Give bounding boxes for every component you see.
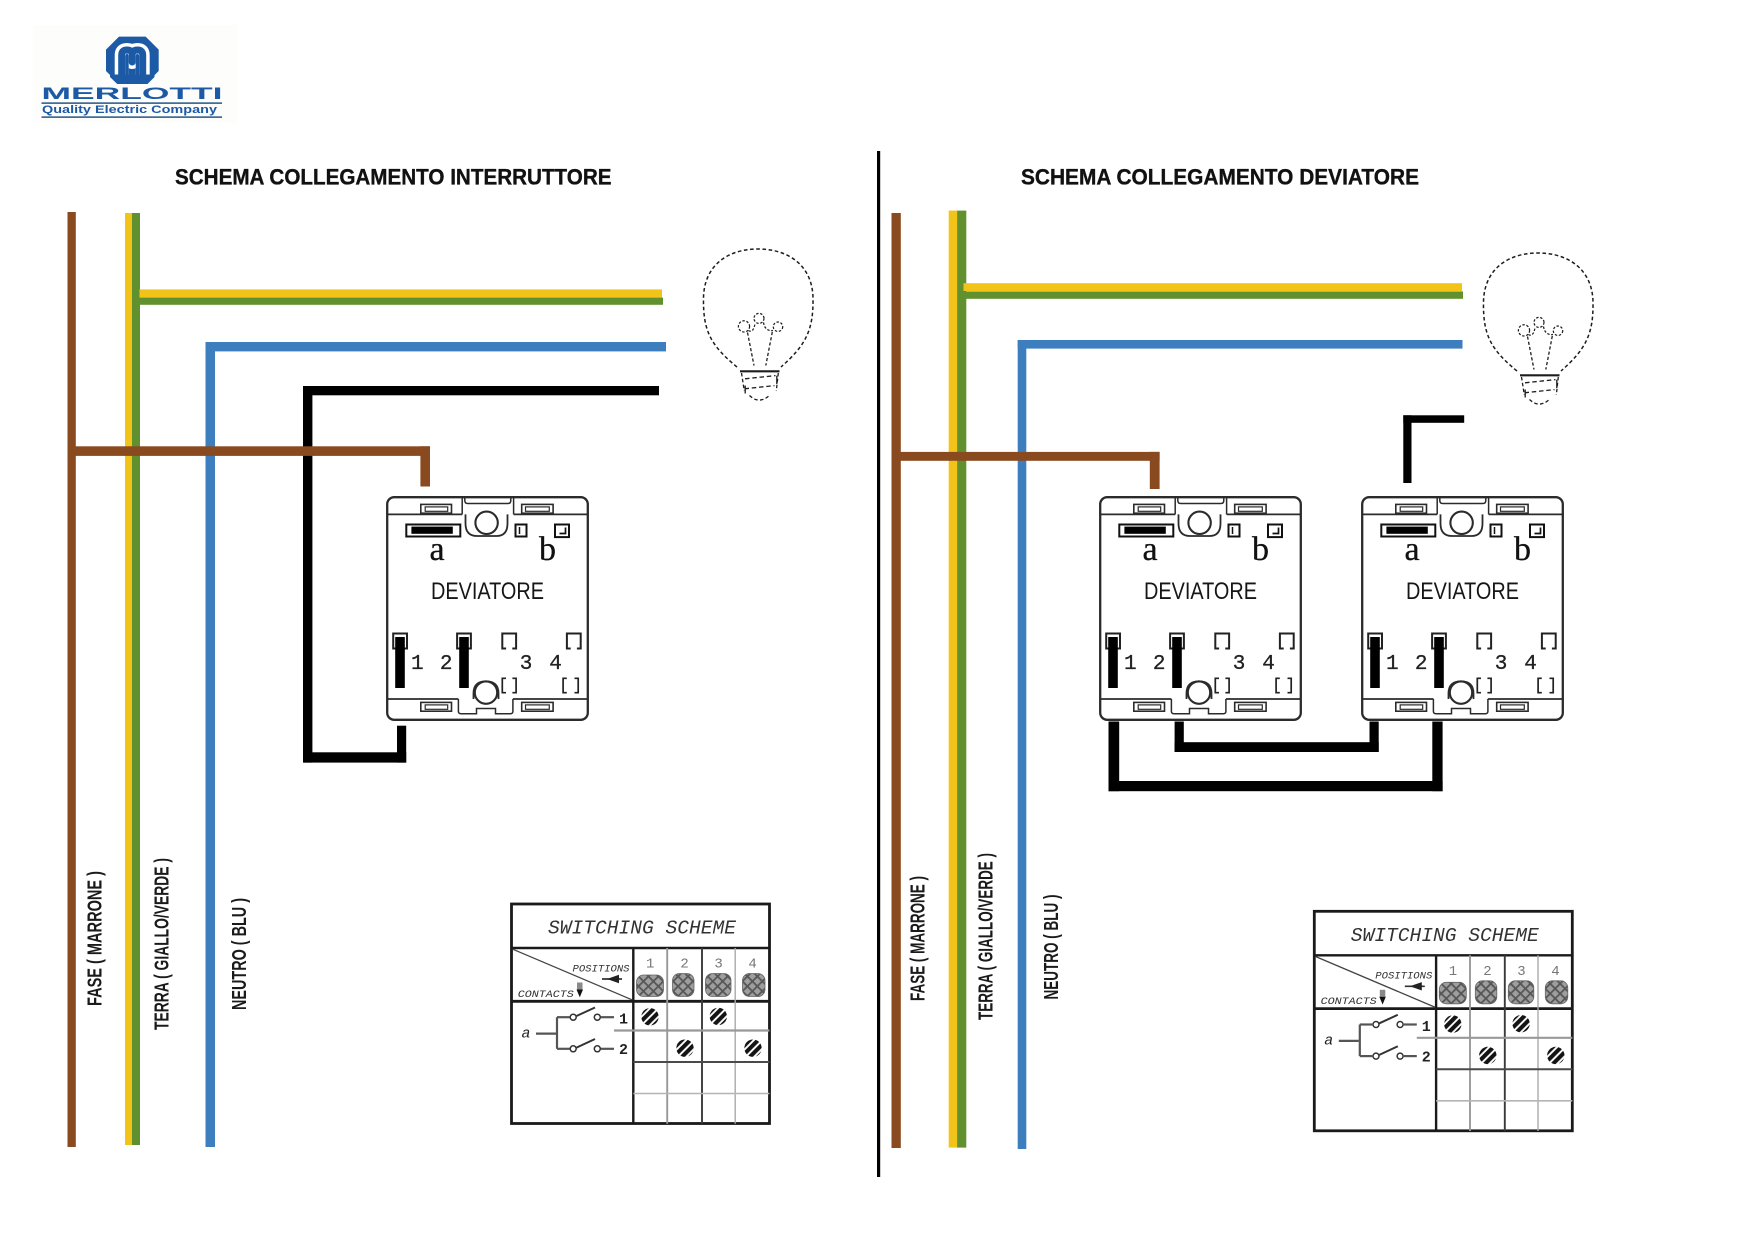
svg-text:NEUTRO ( BLU ): NEUTRO ( BLU ) xyxy=(1041,895,1063,1000)
svg-text:SCHEMA COLLEGAMENTO DEVIATORE: SCHEMA COLLEGAMENTO DEVIATORE xyxy=(1021,164,1419,189)
svg-text:FASE ( MARRONE ): FASE ( MARRONE ) xyxy=(85,871,107,1006)
svg-text:Quality Electric Company: Quality Electric Company xyxy=(42,104,217,116)
svg-text:TERRA ( GIALLO/VERDE ): TERRA ( GIALLO/VERDE ) xyxy=(152,858,174,1030)
svg-text:TERRA ( GIALLO/VERDE ): TERRA ( GIALLO/VERDE ) xyxy=(976,853,998,1020)
svg-text:MERLOTTI: MERLOTTI xyxy=(42,85,223,103)
svg-text:FASE ( MARRONE ): FASE ( MARRONE ) xyxy=(908,876,930,1001)
svg-text:SCHEMA COLLEGAMENTO INTERRUTTO: SCHEMA COLLEGAMENTO INTERRUTTORE xyxy=(175,164,612,189)
svg-text:NEUTRO ( BLU ): NEUTRO ( BLU ) xyxy=(229,898,251,1010)
